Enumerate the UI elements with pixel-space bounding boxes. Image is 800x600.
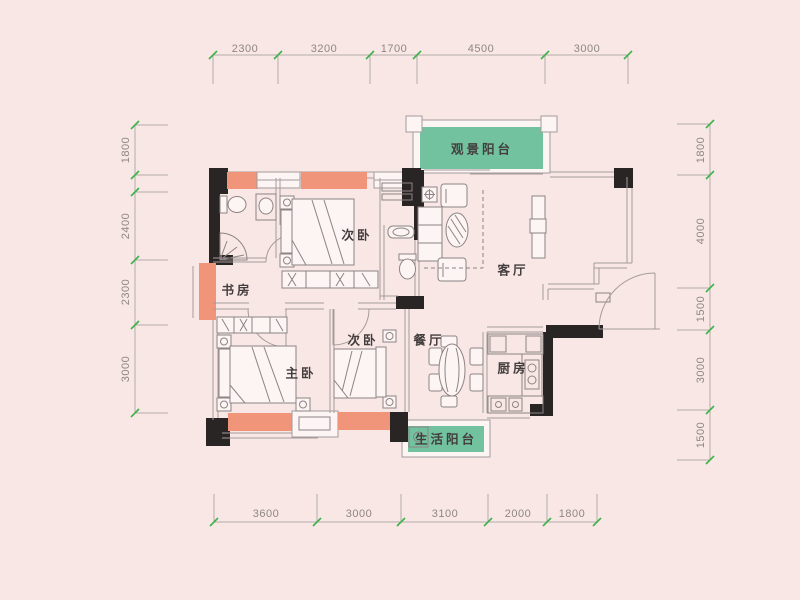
room-label-study: 书房 [221,280,252,299]
dim-right-1: 1800 [695,137,707,163]
dim-bottom-5: 1800 [559,508,585,520]
dimension-chain-left [131,121,168,417]
toilet-icon [399,254,416,279]
dim-bottom-4: 2000 [505,508,531,520]
dim-right-4: 3000 [695,357,707,383]
bed-icon [334,349,376,398]
floor-plan-canvas: 观景阳台 客厅 次卧 书房 主卧 次卧 餐厅 厨房 生活阳台 2300 3200… [0,0,800,600]
room-label-utility-balcony: 生活阳台 [415,429,477,448]
sofa-icon [418,207,442,261]
room-label-living-room: 客厅 [497,260,528,279]
bathroom-1-fixtures [220,194,276,260]
dim-right-5: 1500 [695,422,707,448]
dim-top-3: 1700 [381,43,407,55]
room-label-dining-room: 餐厅 [413,330,444,349]
dim-right-2: 4000 [695,218,707,244]
dimension-chain-right [677,120,714,464]
wardrobe-icon [217,317,287,333]
toilet-icon [220,196,246,213]
sink-icon [491,398,522,411]
coffee-table-icon [446,213,468,247]
side-table-icon [422,187,437,202]
dim-bottom-1: 3600 [253,508,279,520]
dim-left-4: 3000 [120,356,132,382]
dim-left-2: 2400 [120,213,132,239]
vanity-icon [388,226,414,238]
dim-right-3: 1500 [695,296,707,322]
room-label-master-bedroom: 主卧 [285,363,316,382]
dimension-chain-top [209,51,632,84]
dim-top-2: 3200 [311,43,337,55]
room-label-bedroom-top: 次卧 [341,225,372,244]
sink-icon [256,194,276,220]
armchair-icon [438,258,466,281]
dining-table-icon [439,344,465,396]
dim-top-1: 2300 [232,43,258,55]
dim-top-4: 4500 [468,43,494,55]
tv-cabinet-icon [530,196,546,258]
dim-bottom-2: 3000 [346,508,372,520]
armchair-icon [441,184,467,207]
room-label-kitchen: 厨房 [497,358,528,377]
room-label-viewing-balcony: 观景阳台 [451,139,513,158]
dim-bottom-3: 3100 [432,508,458,520]
room-label-bedroom-mid: 次卧 [347,330,378,349]
dim-top-5: 3000 [574,43,600,55]
wardrobe-icon [282,271,378,288]
dim-left-1: 1800 [120,137,132,163]
dim-left-3: 2300 [120,279,132,305]
